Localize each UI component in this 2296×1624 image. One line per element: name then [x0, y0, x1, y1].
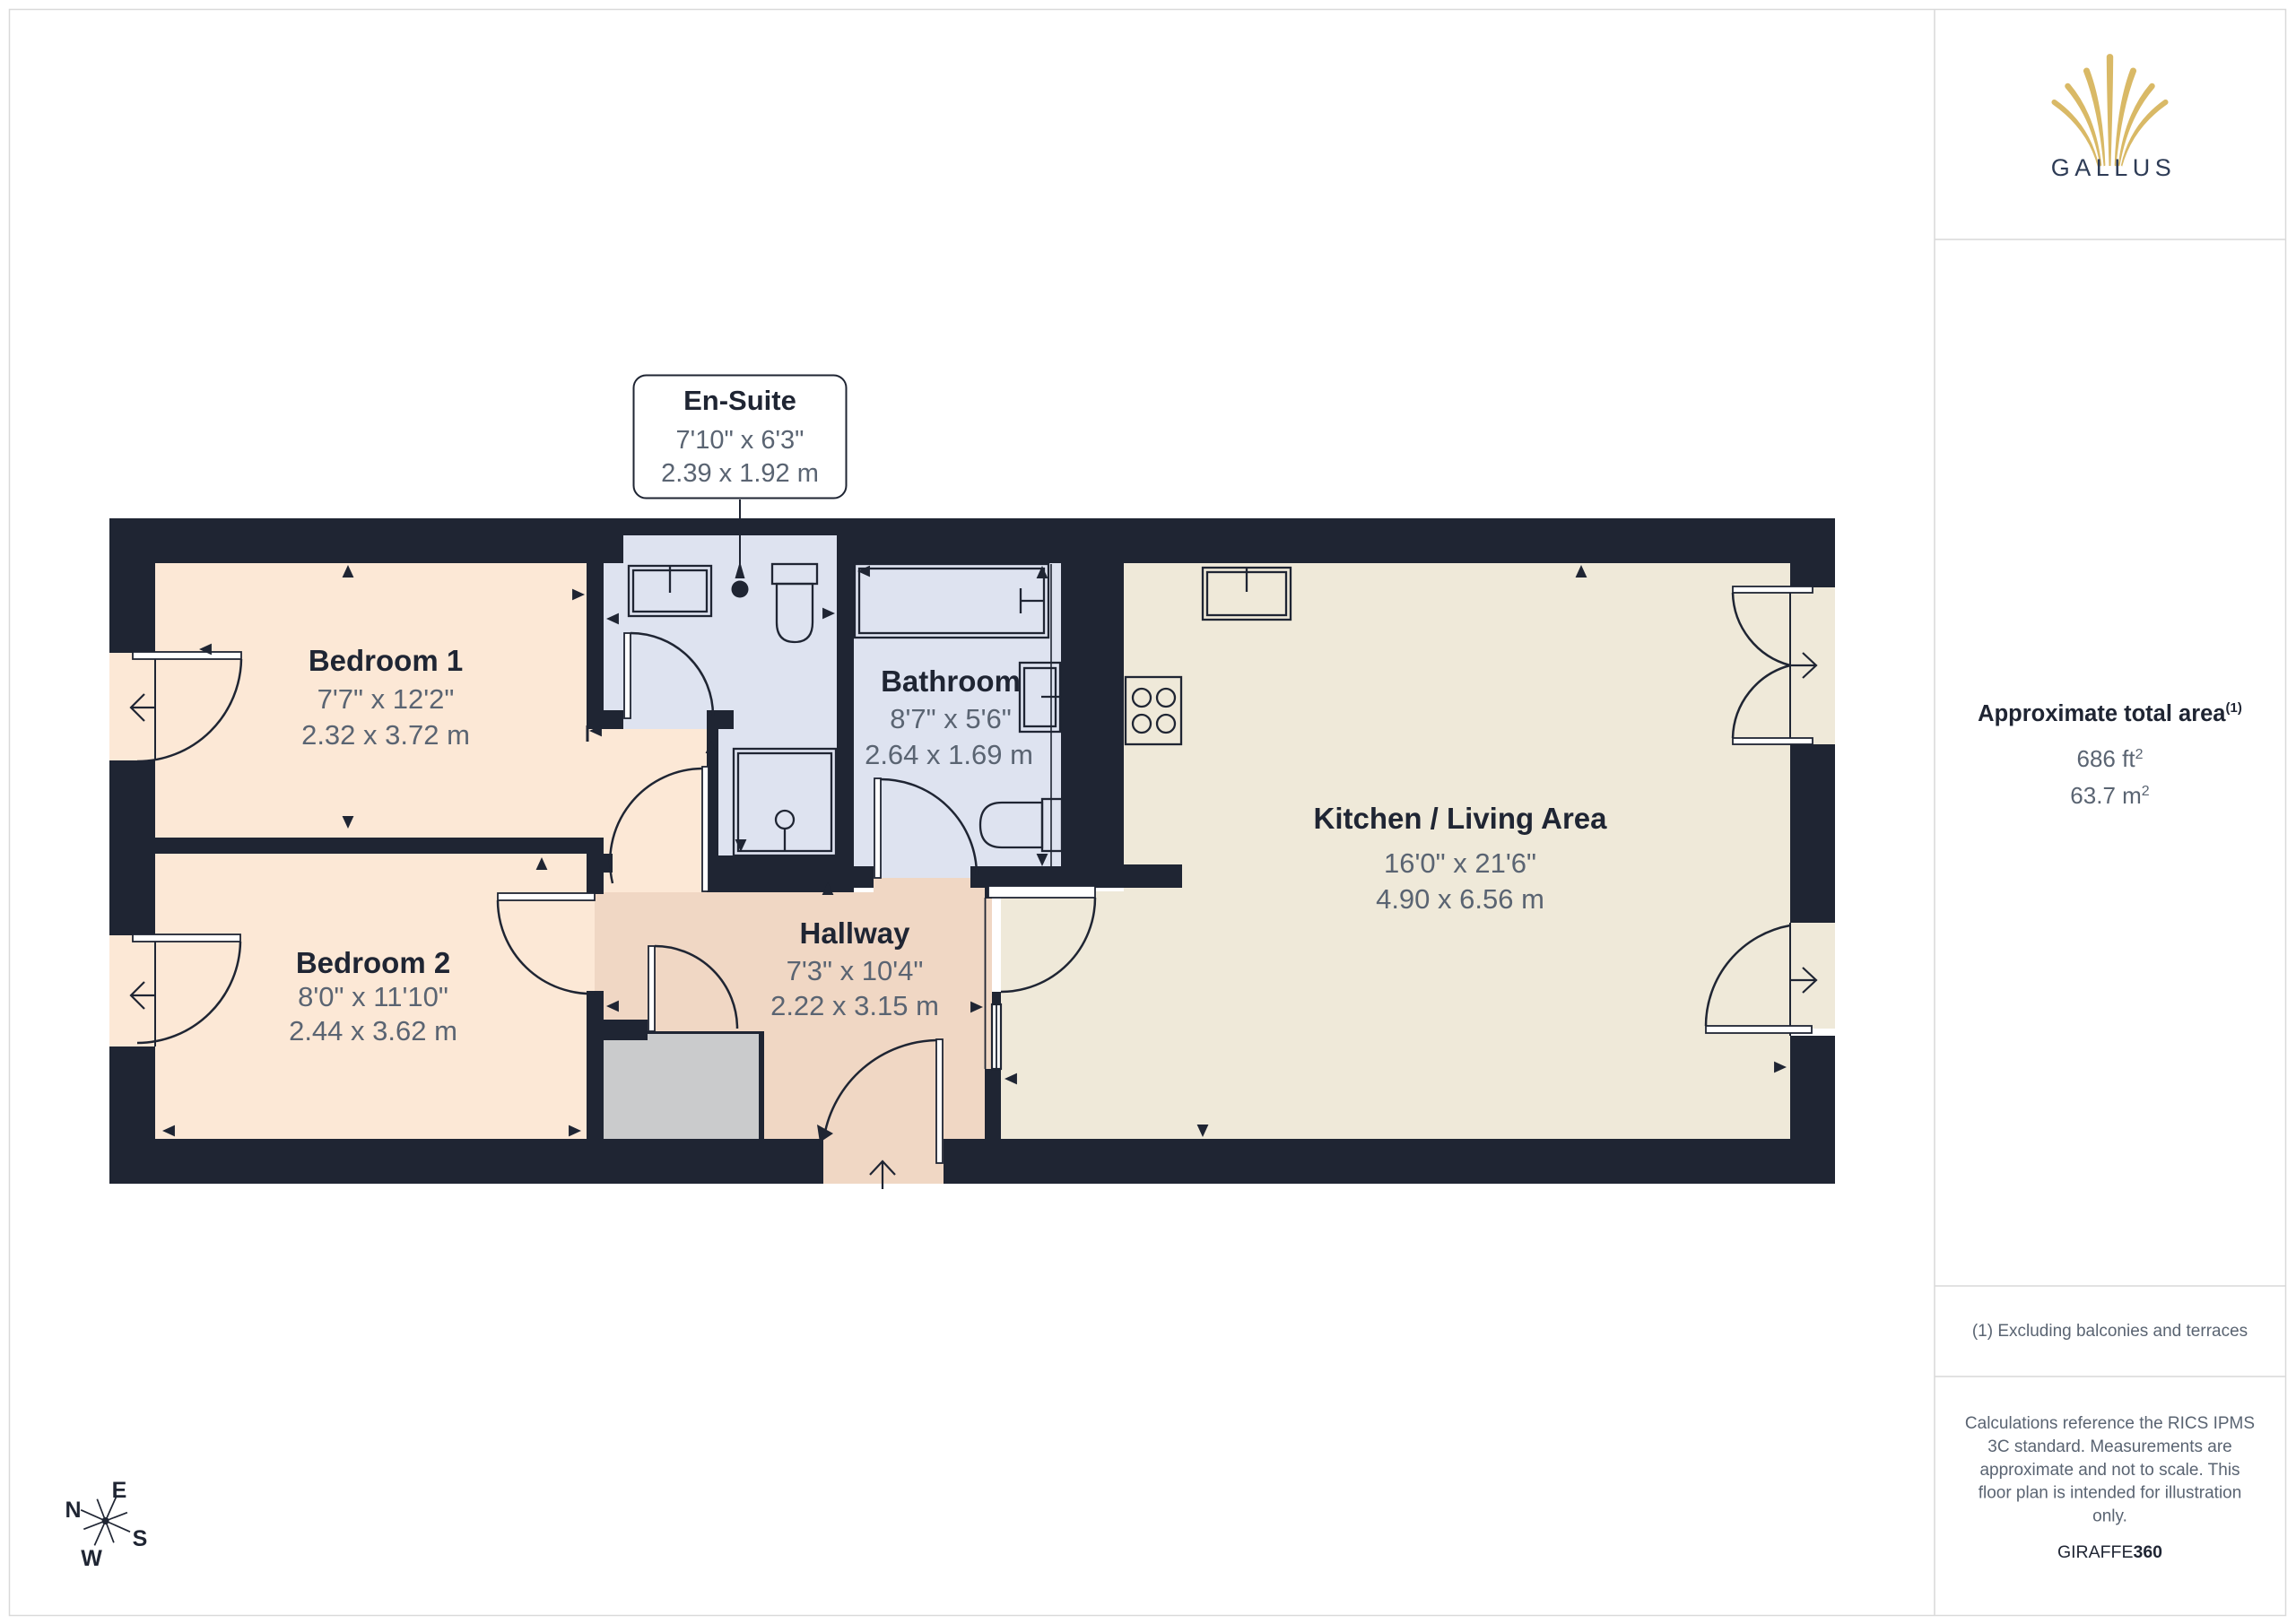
- svg-text:Calculations reference the RIC: Calculations reference the RICS IPMS: [1965, 1414, 2255, 1433]
- svg-text:Bedroom 2: Bedroom 2: [296, 946, 450, 979]
- svg-text:only.: only.: [2092, 1507, 2127, 1526]
- svg-text:S: S: [133, 1526, 148, 1551]
- svg-text:(1) Excluding balconies and te: (1) Excluding balconies and terraces: [1972, 1322, 2248, 1341]
- svg-text:16'0" x 21'6": 16'0" x 21'6": [1384, 847, 1536, 879]
- svg-text:2.44 x 3.62 m: 2.44 x 3.62 m: [289, 1015, 457, 1046]
- svg-text:Hallway: Hallway: [800, 916, 911, 950]
- svg-text:W: W: [81, 1546, 102, 1571]
- svg-text:GIRAFFE360: GIRAFFE360: [2057, 1542, 2162, 1562]
- svg-text:7'3" x 10'4": 7'3" x 10'4": [787, 955, 924, 986]
- svg-text:2.22 x 3.15 m: 2.22 x 3.15 m: [770, 990, 939, 1021]
- svg-text:7'10" x 6'3": 7'10" x 6'3": [676, 426, 804, 455]
- svg-text:8'7" x 5'6": 8'7" x 5'6": [890, 703, 1012, 734]
- svg-text:2.32 x 3.72 m: 2.32 x 3.72 m: [301, 719, 470, 751]
- svg-text:8'0" x 11'10": 8'0" x 11'10": [298, 981, 448, 1012]
- svg-text:3C standard. Measurements are: 3C standard. Measurements are: [1987, 1437, 2231, 1456]
- svg-text:686 ft2: 686 ft2: [2077, 745, 2144, 772]
- svg-text:N: N: [65, 1498, 81, 1523]
- svg-text:GALLUS: GALLUS: [2051, 154, 2177, 181]
- svg-text:Approximate total area(1): Approximate total area(1): [1978, 700, 2242, 726]
- svg-text:Bathroom: Bathroom: [881, 664, 1021, 698]
- svg-text:2.64 x 1.69 m: 2.64 x 1.69 m: [865, 739, 1033, 770]
- svg-text:Bedroom 1: Bedroom 1: [309, 644, 463, 677]
- svg-text:4.90 x 6.56 m: 4.90 x 6.56 m: [1376, 883, 1544, 915]
- svg-text:7'7" x 12'2": 7'7" x 12'2": [317, 683, 455, 715]
- svg-text:E: E: [112, 1478, 127, 1503]
- svg-text:floor plan is intended for ill: floor plan is intended for illustration: [1979, 1484, 2242, 1503]
- svg-text:2.39 x 1.92 m: 2.39 x 1.92 m: [661, 459, 819, 488]
- svg-text:approximate and not to scale.: approximate and not to scale. This: [1979, 1461, 2239, 1480]
- svg-text:Kitchen / Living Area: Kitchen / Living Area: [1313, 802, 1607, 835]
- svg-text:63.7 m2: 63.7 m2: [2070, 782, 2150, 809]
- svg-text:En-Suite: En-Suite: [683, 385, 796, 416]
